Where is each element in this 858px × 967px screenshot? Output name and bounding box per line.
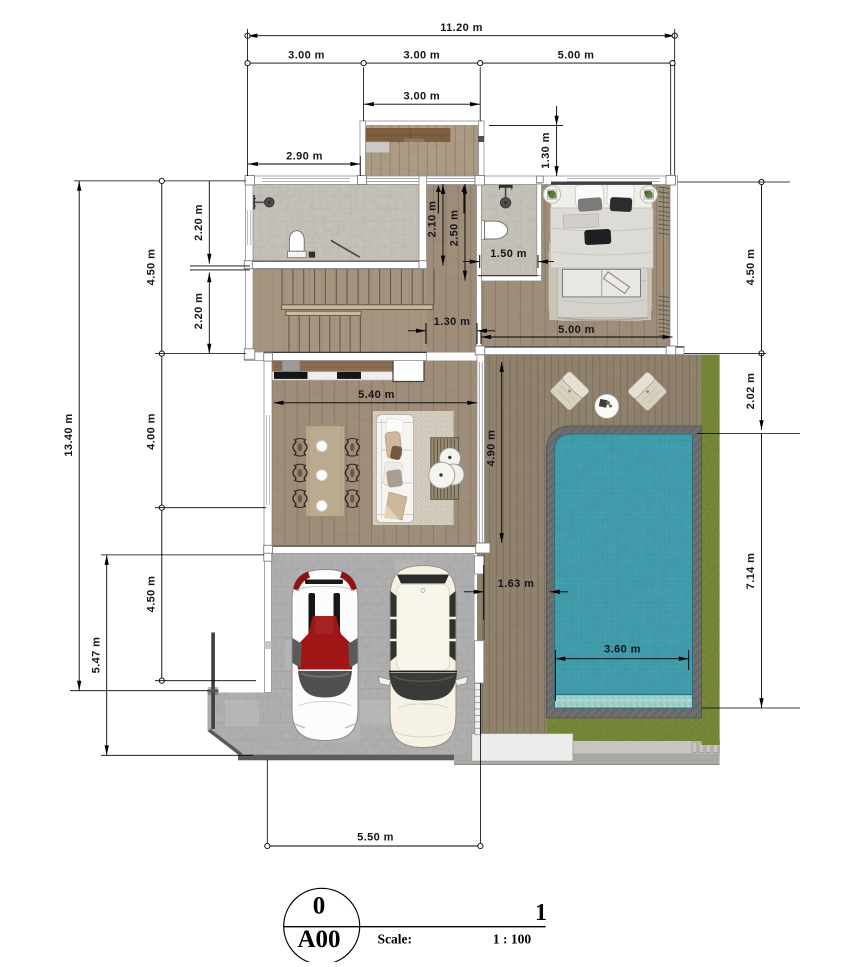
svg-text:13.40 m: 13.40 m <box>63 413 75 456</box>
svg-text:1.30 m: 1.30 m <box>540 132 552 169</box>
svg-text:1.63 m: 1.63 m <box>498 578 535 590</box>
svg-text:5.00 m: 5.00 m <box>558 324 595 336</box>
svg-text:5.00 m: 5.00 m <box>558 50 595 62</box>
svg-text:Scale:: Scale: <box>378 932 413 947</box>
svg-text:0: 0 <box>313 893 326 920</box>
svg-text:5.50 m: 5.50 m <box>357 832 394 844</box>
svg-text:4.00 m: 4.00 m <box>146 413 158 450</box>
svg-text:5.40 m: 5.40 m <box>358 389 395 401</box>
svg-text:2.10 m: 2.10 m <box>427 201 439 238</box>
svg-text:1: 1 <box>535 900 547 926</box>
svg-text:4.90 m: 4.90 m <box>486 430 498 467</box>
svg-text:1.30 m: 1.30 m <box>434 316 471 328</box>
svg-text:1.50 m: 1.50 m <box>490 248 527 260</box>
svg-text:A00: A00 <box>297 926 340 953</box>
svg-text:11.20 m: 11.20 m <box>440 22 483 34</box>
svg-text:7.14 m: 7.14 m <box>745 553 757 590</box>
svg-text:4.50 m: 4.50 m <box>745 249 757 286</box>
svg-text:5.47 m: 5.47 m <box>91 637 103 674</box>
svg-text:2.50 m: 2.50 m <box>449 210 461 247</box>
svg-text:4.50 m: 4.50 m <box>146 249 158 286</box>
svg-text:3.00 m: 3.00 m <box>288 50 325 62</box>
svg-text:2.02 m: 2.02 m <box>745 373 757 410</box>
svg-text:2.20 m: 2.20 m <box>193 204 205 241</box>
svg-text:3.60 m: 3.60 m <box>604 644 641 656</box>
svg-text:4.50 m: 4.50 m <box>146 576 158 613</box>
svg-text:2.20 m: 2.20 m <box>193 293 205 330</box>
svg-text:3.00 m: 3.00 m <box>403 91 440 103</box>
svg-text:3.00 m: 3.00 m <box>403 50 440 62</box>
svg-text:2.90 m: 2.90 m <box>286 151 323 163</box>
svg-text:1 : 100: 1 : 100 <box>493 932 531 947</box>
